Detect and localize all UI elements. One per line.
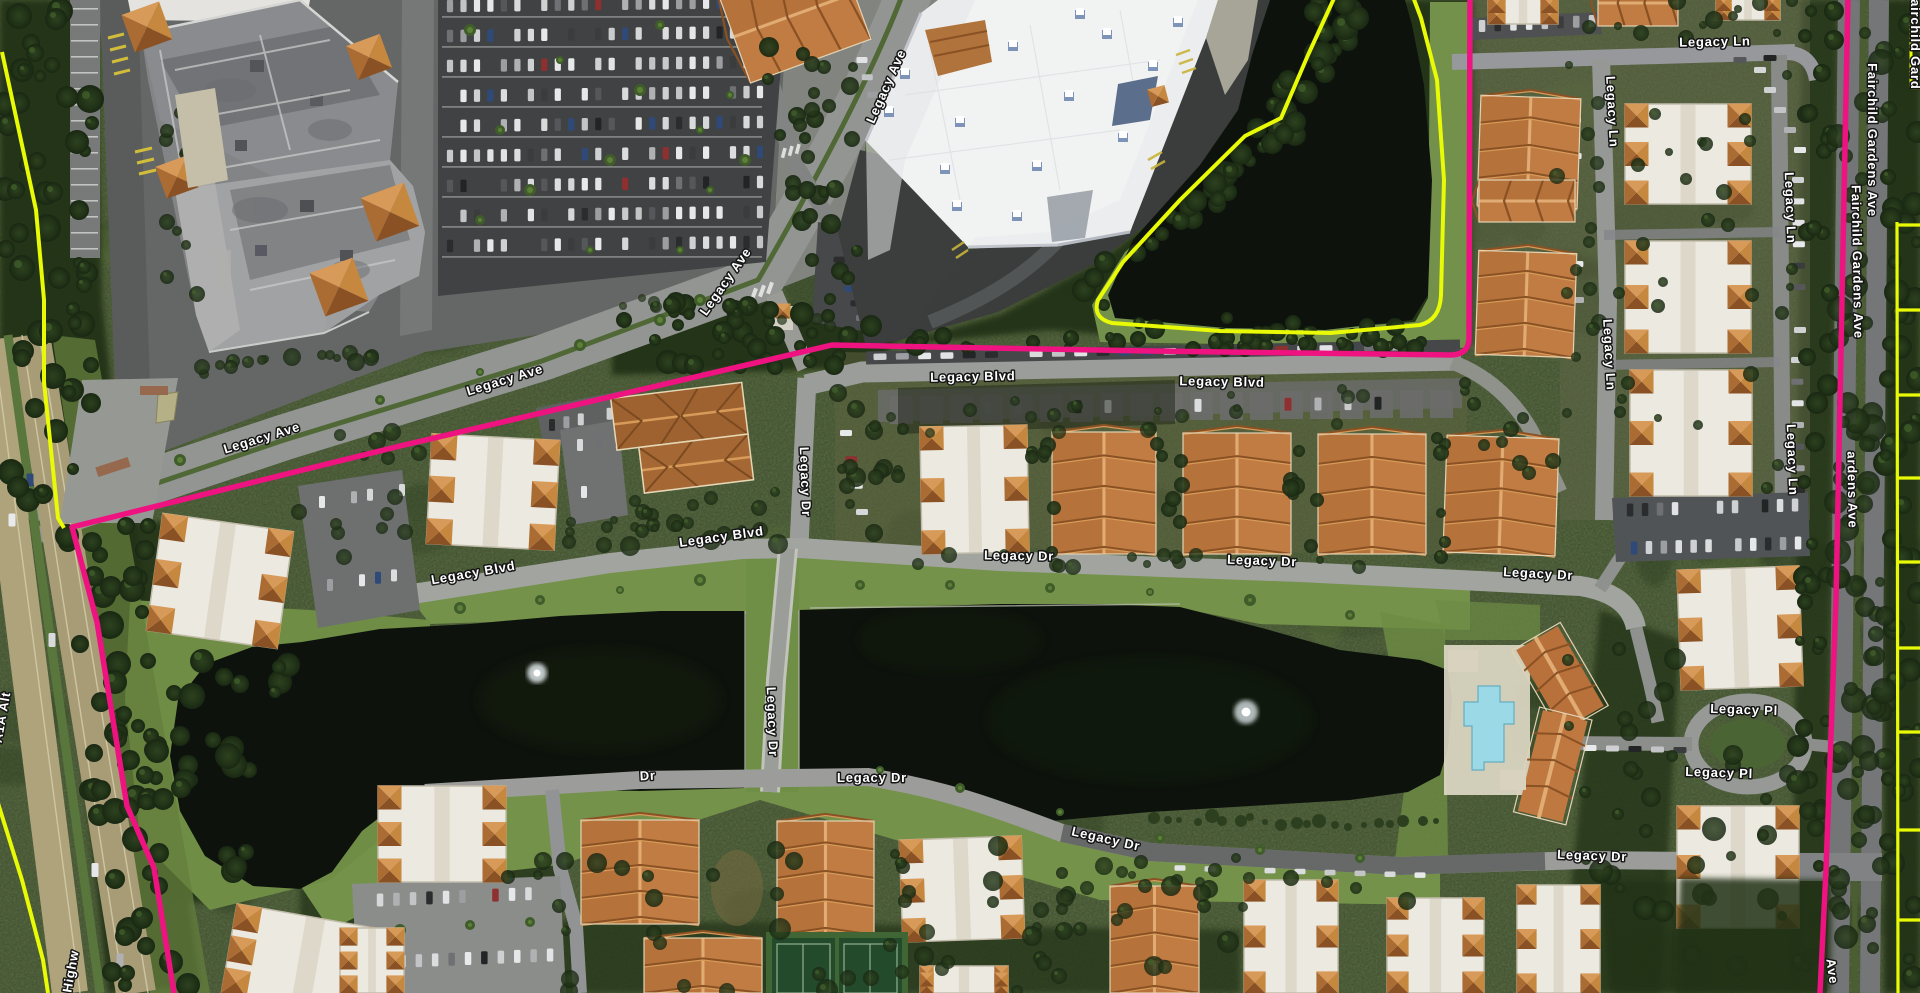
svg-text:Legacy Dr: Legacy Dr xyxy=(1557,847,1628,864)
svg-text:Legacy Blvd: Legacy Blvd xyxy=(930,368,1016,384)
svg-text:Legacy Dr: Legacy Dr xyxy=(797,447,814,518)
svg-text:Legacy Ln: Legacy Ln xyxy=(1784,424,1801,496)
svg-text:Legacy Blvd: Legacy Blvd xyxy=(1179,373,1265,389)
svg-text:Dr: Dr xyxy=(639,768,656,784)
svg-text:ardens Ave: ardens Ave xyxy=(1844,451,1860,528)
svg-text:Fairchild Gard: Fairchild Gard xyxy=(1908,0,1920,90)
svg-text:Fairchild Gardens Ave: Fairchild Gardens Ave xyxy=(1865,63,1880,217)
svg-text:Legacy Ln: Legacy Ln xyxy=(1679,33,1751,49)
svg-text:Legacy Dr: Legacy Dr xyxy=(764,687,781,758)
svg-text:Legacy Dr: Legacy Dr xyxy=(984,547,1054,563)
svg-text:Legacy Pl: Legacy Pl xyxy=(1685,764,1753,781)
svg-text:Legacy Dr: Legacy Dr xyxy=(837,770,907,785)
svg-text:Fairchild Gardens Ave: Fairchild Gardens Ave xyxy=(1849,185,1867,339)
svg-text:Legacy Dr: Legacy Dr xyxy=(1227,552,1298,569)
svg-text:Legacy Ln: Legacy Ln xyxy=(1782,172,1799,244)
svg-text:Legacy Pl: Legacy Pl xyxy=(1710,701,1778,718)
